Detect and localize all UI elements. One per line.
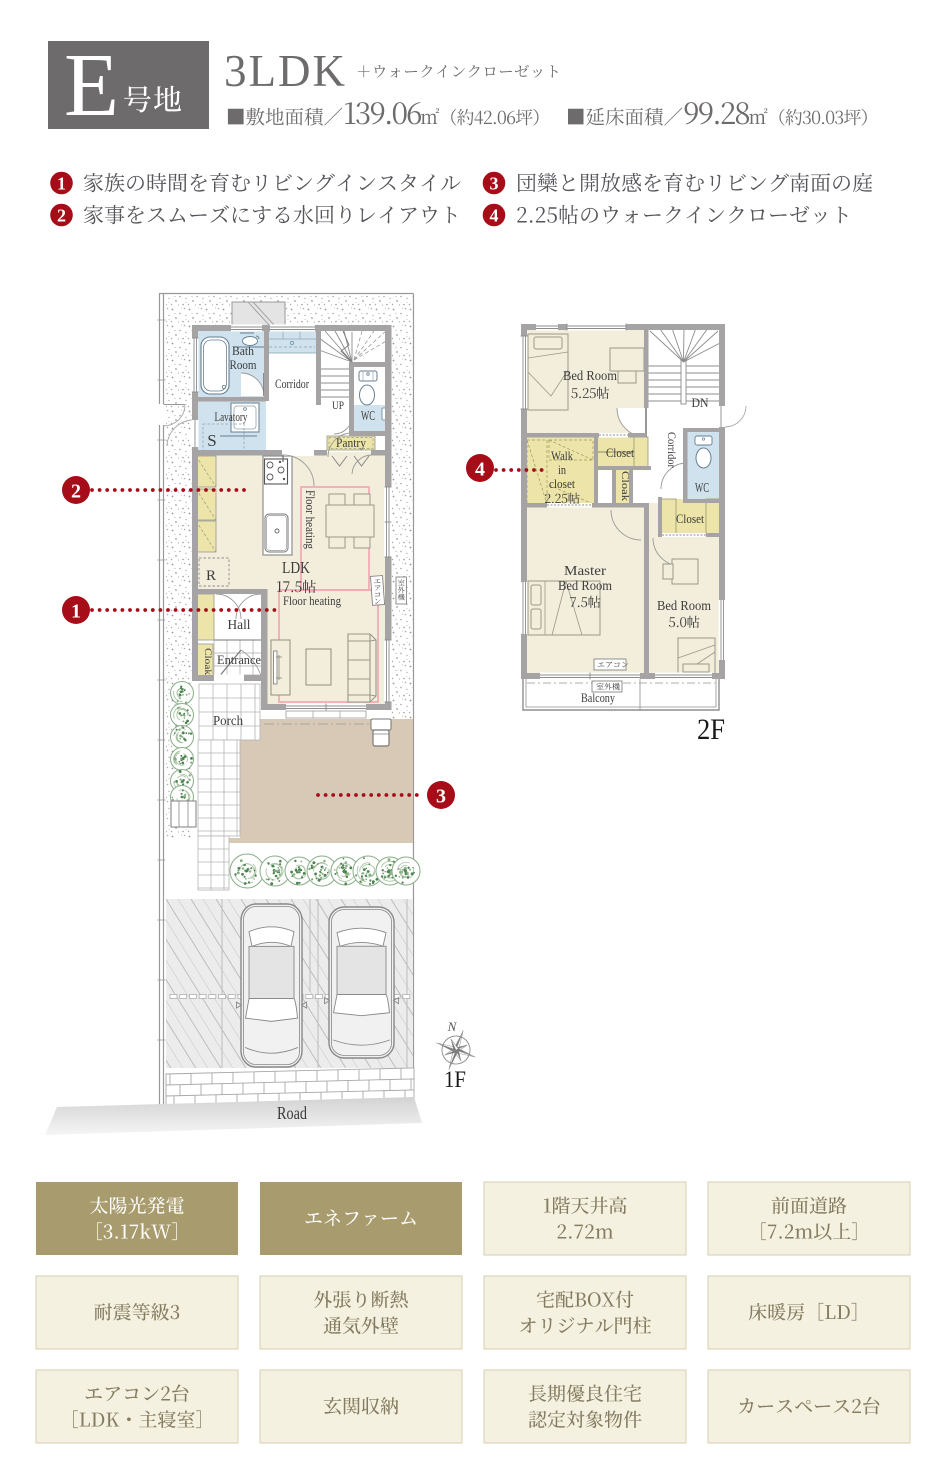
svg-text:Balcony: Balcony [581,690,615,705]
svg-text:4: 4 [475,459,485,481]
svg-text:3: 3 [436,786,446,808]
svg-text:closet: closet [549,477,575,491]
svg-text:Bed Room: Bed Room [558,579,612,594]
svg-text:Cloak: Cloak [619,471,630,501]
svg-text:3LDK: 3LDK [224,46,347,96]
svg-text:Porch: Porch [213,713,243,728]
svg-text:Bath: Bath [232,343,254,358]
svg-text:E: E [64,36,119,135]
svg-text:Hall: Hall [228,618,251,633]
svg-text:2F: 2F [697,713,725,746]
svg-text:Pantry: Pantry [336,436,367,450]
svg-text:3: 3 [490,174,499,194]
svg-text:Floor heating: Floor heating [303,490,318,549]
svg-text:Cloak: Cloak [202,648,212,675]
svg-text:DN: DN [692,396,709,410]
svg-text:1: 1 [57,174,66,194]
svg-text:Floor heating: Floor heating [283,593,341,608]
svg-text:Corridor: Corridor [665,432,679,468]
svg-text:Corridor: Corridor [275,376,310,391]
svg-text:Bed Room: Bed Room [657,599,711,614]
svg-text:4: 4 [490,206,499,226]
svg-text:LDK: LDK [282,558,310,577]
svg-text:Road: Road [277,1103,307,1123]
svg-text:S: S [207,431,216,450]
svg-text:2: 2 [71,481,81,503]
svg-text:WC: WC [361,408,375,423]
svg-text:Walk: Walk [551,449,574,463]
svg-text:1: 1 [71,601,81,623]
svg-text:Room: Room [230,357,257,372]
svg-text:Closet: Closet [676,512,704,526]
svg-text:N: N [447,1019,458,1034]
svg-text:WC: WC [695,480,709,495]
svg-text:R: R [206,568,216,584]
svg-text:in: in [558,463,567,477]
svg-text:Master: Master [564,564,606,579]
svg-text:Closet: Closet [606,446,634,460]
svg-text:UP: UP [332,398,344,412]
svg-text:Bed Room: Bed Room [563,369,617,384]
svg-text:Entrance: Entrance [217,653,261,667]
svg-text:Lavatory: Lavatory [215,409,248,424]
svg-text:1F: 1F [444,1067,466,1092]
svg-text:2: 2 [57,206,66,226]
